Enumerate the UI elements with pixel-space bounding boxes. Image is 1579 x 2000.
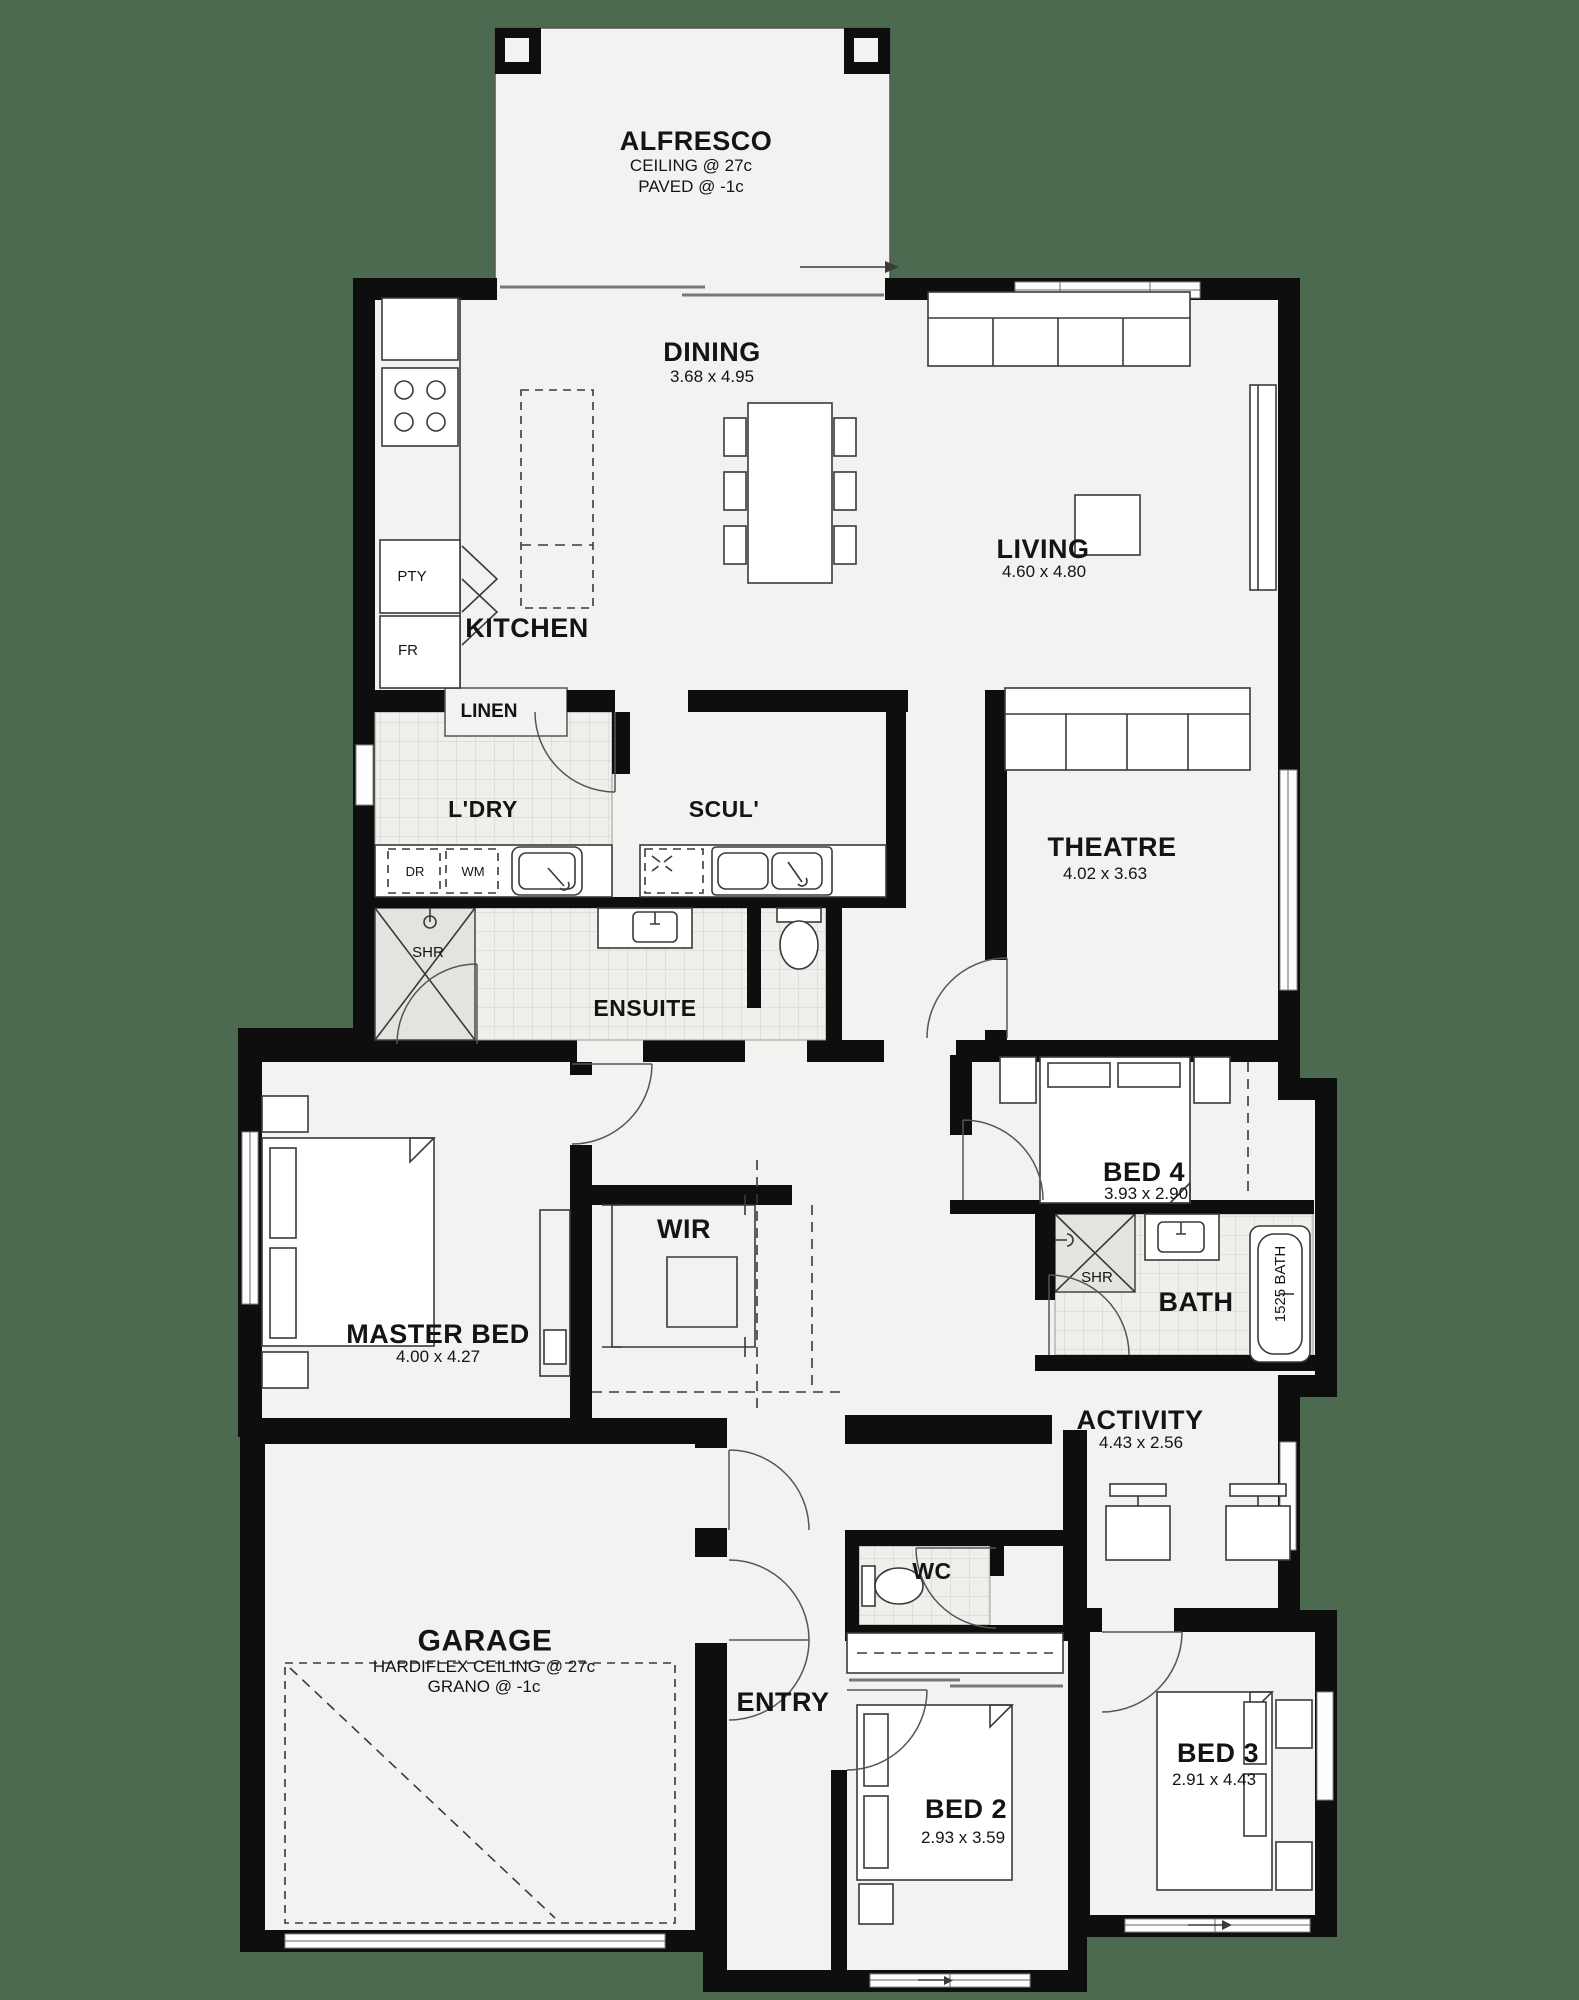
fixture-label-shr-bath: SHR xyxy=(1081,1270,1113,1286)
room-label-master: MASTER BED xyxy=(346,1320,530,1348)
fixture-label-pantry: PTY xyxy=(397,569,426,585)
room-label-bed2: BED 2 xyxy=(925,1795,1007,1823)
room-label-kitchen: KITCHEN xyxy=(465,614,589,642)
dining-dims: 3.68 x 4.95 xyxy=(670,368,754,386)
theatre-sofa xyxy=(1005,688,1250,770)
room-label-bed4: BED 4 xyxy=(1103,1158,1185,1186)
dining-table xyxy=(724,403,856,583)
living-dims: 4.60 x 4.80 xyxy=(1002,563,1086,581)
room-label-alfresco: ALFRESCO xyxy=(620,127,773,155)
fixture-label-bathtub: 1525 BATH xyxy=(1273,1246,1289,1322)
floorplan-page: ALFRESCO CEILING @ 27c PAVED @ -1c DININ… xyxy=(0,0,1579,2000)
room-label-garage: GARAGE xyxy=(418,1625,553,1657)
room-label-bed3: BED 3 xyxy=(1177,1739,1259,1767)
activity-dims: 4.43 x 2.56 xyxy=(1099,1434,1183,1452)
bed3-dims: 2.91 x 4.43 xyxy=(1172,1771,1256,1789)
room-label-linen: LINEN xyxy=(461,702,518,722)
room-label-ensuite: ENSUITE xyxy=(593,996,696,1020)
room-label-activity: ACTIVITY xyxy=(1076,1406,1203,1434)
bed4-dims: 3.93 x 2.90 xyxy=(1104,1185,1188,1203)
room-label-bath: BATH xyxy=(1159,1288,1234,1316)
room-label-entry: ENTRY xyxy=(736,1688,829,1716)
fixture-label-fridge: FR xyxy=(398,643,418,659)
shower-ensuite xyxy=(375,908,475,1040)
fixture-label-dryer: DR xyxy=(406,865,425,879)
ensuite-toilet xyxy=(777,908,821,969)
garage-note-grano: GRANO @ -1c xyxy=(428,1678,541,1696)
room-label-theatre: THEATRE xyxy=(1048,833,1177,861)
fixture-label-shr-ensuite: SHR xyxy=(412,945,444,961)
theatre-dims: 4.02 x 3.63 xyxy=(1063,865,1147,883)
fixture-label-washer: WM xyxy=(461,865,484,879)
room-label-wir: WIR xyxy=(657,1215,711,1243)
room-label-dining: DINING xyxy=(663,338,761,366)
room-label-wc: WC xyxy=(912,1559,951,1583)
master-dims: 4.00 x 4.27 xyxy=(396,1348,480,1366)
alfresco-note-ceiling: CEILING @ 27c xyxy=(630,157,752,175)
bed2-dims: 2.93 x 3.59 xyxy=(921,1829,1005,1847)
alfresco-note-paved: PAVED @ -1c xyxy=(638,178,743,196)
scullery-bench xyxy=(640,845,886,897)
garage-note-ceiling: HARDIFLEX CEILING @ 27c xyxy=(373,1658,595,1676)
room-label-living: LIVING xyxy=(996,535,1089,563)
room-label-scullery: SCUL' xyxy=(689,797,760,821)
room-label-laundry: L'DRY xyxy=(448,797,518,821)
